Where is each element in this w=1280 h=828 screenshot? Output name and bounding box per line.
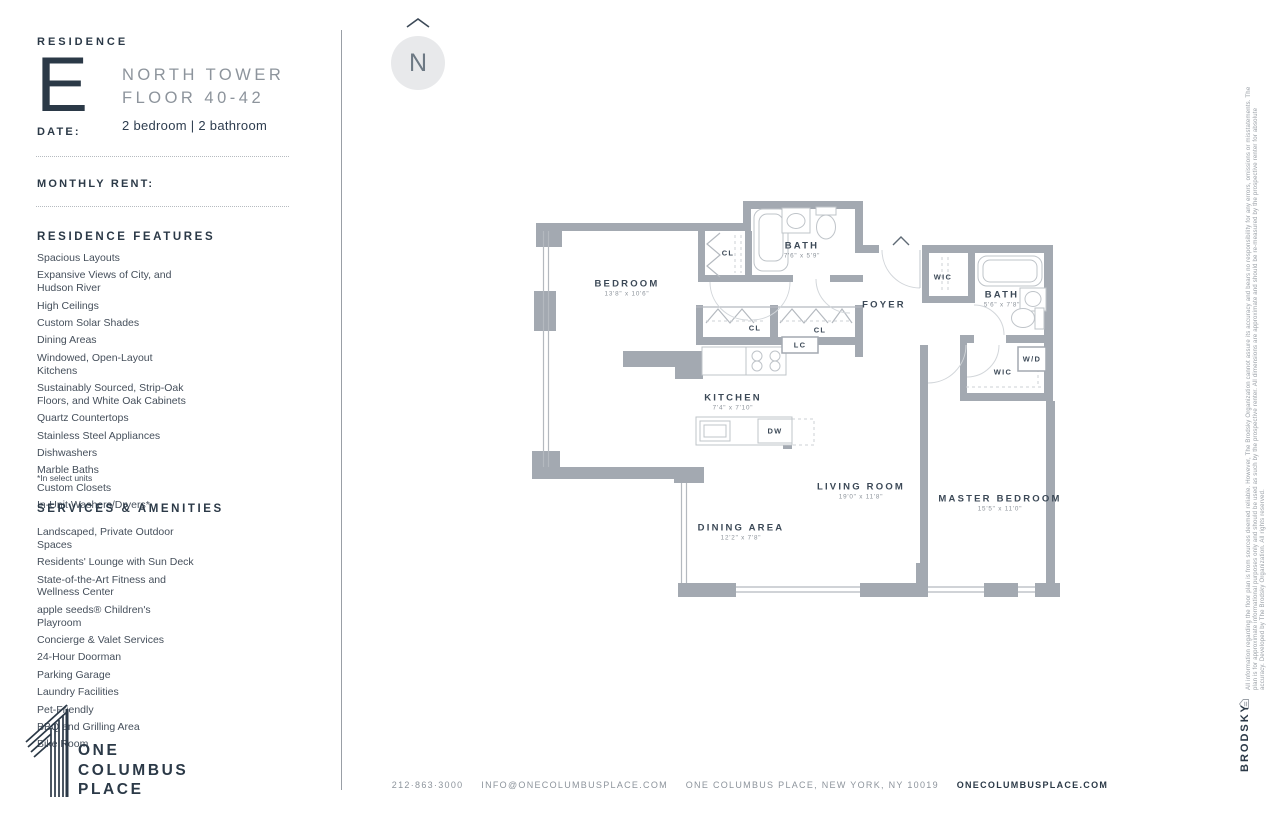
date-label: DATE:	[37, 126, 81, 138]
list-item: Stainless Steel Appliances	[37, 430, 195, 443]
list-item: Spacious Layouts	[37, 252, 195, 265]
monthly-rent-label: MONTHLY RENT:	[37, 178, 154, 190]
footer-website: ONECOLUMBUSPLACE.COM	[957, 780, 1109, 790]
list-item: Expansive Views of City, and Hudson Rive…	[37, 269, 195, 295]
list-item: Windowed, Open-Layout Kitchens	[37, 352, 195, 378]
north-arrow-icon	[403, 17, 433, 29]
closet-label-2: CL	[749, 324, 762, 333]
date-blank-line	[36, 156, 289, 157]
list-item: State-of-the-Art Fitness and Wellness Ce…	[37, 574, 195, 600]
residence-info-block: NORTH TOWER FLOOR 40-42 2 bedroom | 2 ba…	[122, 64, 284, 133]
one-columbus-place-logo: ONE COLUMBUS PLACE	[24, 702, 274, 802]
rent-blank-line	[36, 206, 289, 207]
list-item: Custom Closets	[37, 482, 195, 495]
amenities-title: SERVICES & AMENITIES	[37, 503, 224, 515]
list-item: apple seeds® Children's Playroom	[37, 604, 195, 630]
entry-door-chevron-icon	[893, 237, 909, 245]
tower-name: NORTH TOWER	[122, 64, 284, 87]
bed-bath-count: 2 bedroom | 2 bathroom	[122, 118, 284, 133]
list-item: 24-Hour Doorman	[37, 651, 195, 664]
residence-letter: E	[36, 48, 88, 120]
list-item: Quartz Countertops	[37, 412, 195, 425]
floorplan-flyer-page: { "header": { "residence_label": "RESIDE…	[0, 0, 1280, 828]
compass-badge: N	[391, 36, 445, 90]
footer-contact-bar: 212·863·3000 INFO@ONECOLUMBUSPLACE.COM O…	[370, 780, 1130, 790]
closet-label-1: CL	[722, 249, 735, 258]
list-item: Residents' Lounge with Sun Deck	[37, 556, 195, 569]
room-label-living-room: LIVING ROOM 19'0" x 11'8"	[817, 482, 905, 501]
list-item: Concierge & Valet Services	[37, 634, 195, 647]
features-title: RESIDENCE FEATURES	[37, 231, 215, 243]
logo-line-columbus: COLUMBUS	[78, 761, 188, 781]
logo-numeral-one-icon	[24, 702, 76, 800]
floorplan: BEDROOM 13'8" x 10'6" BATH 7'6" x 5'9" F…	[530, 195, 1105, 620]
brodsky-brand: BRODSKY	[1239, 703, 1251, 772]
list-item: Parking Garage	[37, 669, 195, 682]
list-item: Landscaped, Private Outdoor Spaces	[37, 526, 195, 552]
wic-label-1: WIC	[934, 273, 952, 282]
logo-wordmark: ONE COLUMBUS PLACE	[78, 741, 188, 800]
footer-email: INFO@ONECOLUMBUSPLACE.COM	[481, 780, 668, 790]
list-item: Custom Solar Shades	[37, 317, 195, 330]
list-item: Dishwashers	[37, 447, 195, 460]
compass-letter: N	[409, 49, 427, 78]
dishwasher-label: DW	[767, 427, 782, 436]
logo-line-one: ONE	[78, 741, 188, 761]
room-label-kitchen: KITCHEN 7'4" x 7'10"	[704, 393, 762, 412]
washer-dryer-label: W/D	[1023, 355, 1041, 364]
list-item: Dining Areas	[37, 334, 195, 347]
room-label-bath-1: BATH 7'6" x 5'9"	[784, 241, 820, 260]
features-footnote: *In select units	[37, 473, 92, 483]
footer-address: ONE COLUMBUS PLACE, NEW YORK, NY 10019	[686, 780, 939, 790]
wic-label-2: WIC	[994, 368, 1012, 377]
legal-disclaimer: All information regarding the floor plan…	[1246, 82, 1267, 690]
closet-label-3: CL	[814, 326, 827, 335]
list-item: Sustainably Sourced, Strip-Oak Floors, a…	[37, 382, 195, 408]
logo-line-place: PLACE	[78, 780, 188, 800]
linen-closet-label: LC	[794, 341, 807, 350]
room-label-bath-2: BATH 5'6" x 7'8"	[984, 290, 1020, 309]
vertical-divider	[341, 30, 342, 790]
room-label-dining-area: DINING AREA 12'2" x 7'8"	[698, 523, 785, 542]
room-label-master-bedroom: MASTER BEDROOM 15'5" x 11'0"	[938, 494, 1061, 513]
room-label-foyer: FOYER	[862, 300, 906, 311]
list-item: High Ceilings	[37, 300, 195, 313]
floor-range: FLOOR 40-42	[122, 87, 284, 110]
room-label-bedroom: BEDROOM 13'8" x 10'6"	[594, 279, 659, 298]
footer-phone: 212·863·3000	[392, 780, 464, 790]
list-item: Laundry Facilities	[37, 686, 195, 699]
